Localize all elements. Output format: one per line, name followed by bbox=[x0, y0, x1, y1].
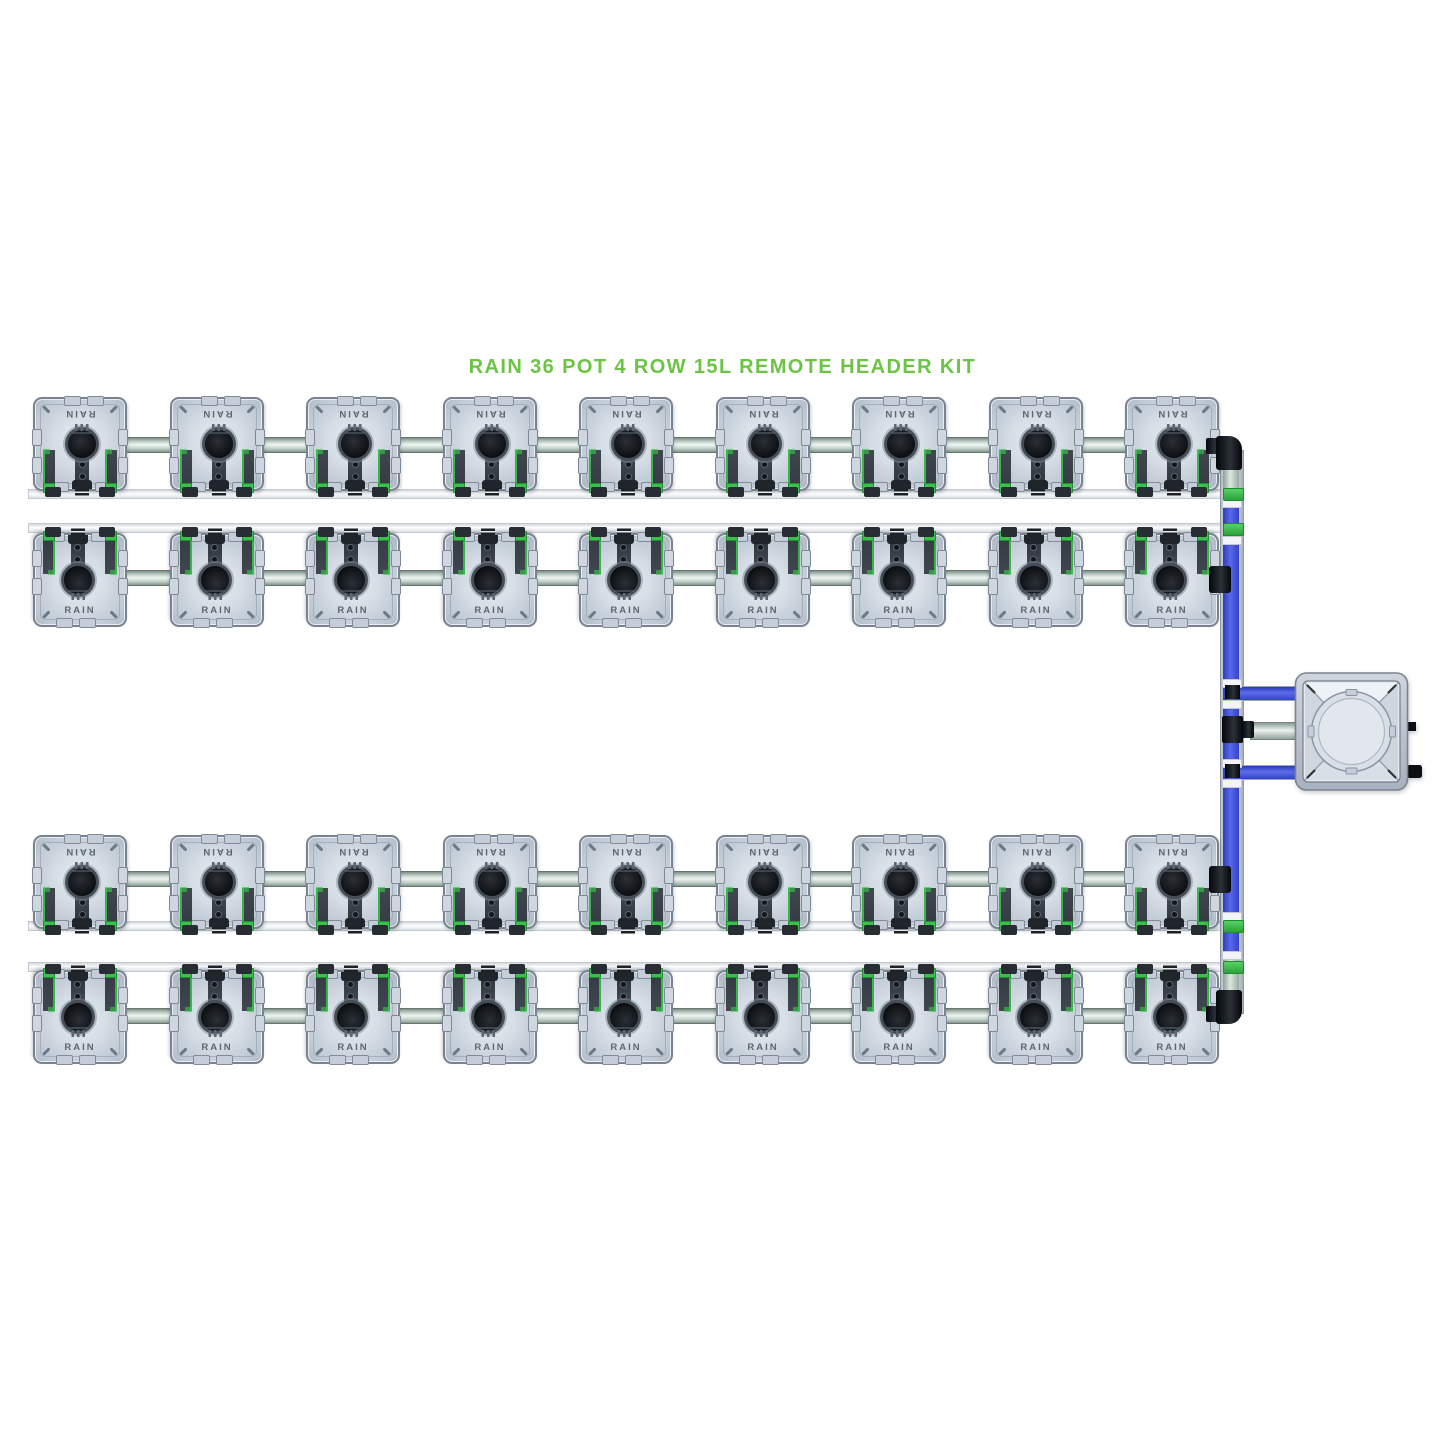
latch-strip-left bbox=[378, 971, 390, 1011]
pot-body: RAIN bbox=[579, 533, 673, 627]
side-clip bbox=[664, 987, 674, 1004]
pot-logo-marks bbox=[617, 593, 631, 600]
side-clip bbox=[851, 987, 861, 1004]
latch-strip-left bbox=[515, 971, 527, 1011]
side-clip bbox=[1074, 867, 1084, 884]
pot-logo-marks bbox=[621, 862, 635, 869]
pot-logo-marks bbox=[208, 1030, 222, 1037]
diagram-canvas: RAIN 36 POT 4 ROW 15L REMOTE HEADER KIT bbox=[0, 0, 1445, 1445]
side-clip bbox=[169, 1015, 179, 1032]
pot-foot bbox=[372, 964, 388, 974]
pot-tab bbox=[898, 1055, 915, 1065]
pot-logo-marks bbox=[1167, 424, 1181, 431]
pot-tab bbox=[898, 618, 915, 628]
side-clip bbox=[937, 550, 947, 567]
pot-foot bbox=[918, 925, 934, 935]
pot-tab bbox=[224, 834, 241, 844]
pot-row-1-5: RAIN bbox=[579, 397, 673, 491]
side-clip bbox=[988, 550, 998, 567]
side-clip bbox=[664, 578, 674, 595]
pot-body: RAIN bbox=[716, 835, 810, 929]
pot-brand-label: RAIN bbox=[35, 605, 125, 616]
latch-strip-right bbox=[999, 971, 1011, 1011]
latch-strip-right bbox=[515, 888, 527, 928]
outlet-base bbox=[341, 535, 361, 544]
latch-strip-left bbox=[515, 534, 527, 574]
side-clip bbox=[255, 429, 265, 446]
pot-foot bbox=[1191, 487, 1207, 497]
side-clip bbox=[937, 867, 947, 884]
pot-foot bbox=[1137, 925, 1153, 935]
green-clip-row-4-return bbox=[1223, 961, 1244, 974]
pot-foot bbox=[1055, 487, 1071, 497]
side-clip bbox=[528, 987, 538, 1004]
outlet-connector bbox=[1027, 527, 1041, 535]
latch-strip-right bbox=[43, 971, 55, 1011]
outlet-base bbox=[72, 480, 92, 489]
pot-tab bbox=[466, 1055, 483, 1065]
pot-brand-label: RAIN bbox=[35, 408, 125, 419]
latch-strip-left bbox=[999, 450, 1011, 490]
side-clip bbox=[851, 429, 861, 446]
side-clip bbox=[801, 550, 811, 567]
pot-foot bbox=[1001, 527, 1017, 537]
pot-body: RAIN bbox=[852, 533, 946, 627]
pot-body: RAIN bbox=[852, 970, 946, 1064]
tank-blue-pipe-bottom bbox=[1239, 765, 1299, 780]
side-clip bbox=[988, 1015, 998, 1032]
pot-tab bbox=[739, 1055, 756, 1065]
latch-strip-left bbox=[862, 888, 874, 928]
side-clip bbox=[715, 1015, 725, 1032]
pot-tab bbox=[762, 618, 779, 628]
pot-row-4-8: RAIN bbox=[989, 970, 1083, 1064]
outlet-base bbox=[618, 918, 638, 927]
side-clip bbox=[937, 1015, 947, 1032]
side-clip bbox=[801, 895, 811, 912]
side-clip bbox=[118, 550, 128, 567]
pot-body: RAIN bbox=[170, 835, 264, 929]
pot-body: RAIN bbox=[443, 533, 537, 627]
latch-strip-left bbox=[788, 534, 800, 574]
side-clip bbox=[715, 895, 725, 912]
pot-row-1-4: RAIN bbox=[443, 397, 537, 491]
outlet-connector bbox=[485, 489, 499, 497]
side-clip bbox=[305, 429, 315, 446]
pot-brand-label: RAIN bbox=[1127, 605, 1217, 616]
pot-foot bbox=[591, 527, 607, 537]
outlet-connector bbox=[75, 489, 89, 497]
side-clip bbox=[1074, 457, 1084, 474]
pot-logo-marks bbox=[344, 593, 358, 600]
pot-tab bbox=[216, 1055, 233, 1065]
latch-strip-left bbox=[726, 450, 738, 490]
outlet-base bbox=[891, 480, 911, 489]
outlet-connector bbox=[1031, 927, 1045, 935]
side-clip bbox=[32, 550, 42, 567]
tank-feed-fitting-top bbox=[1225, 685, 1240, 699]
pot-brand-label: RAIN bbox=[308, 605, 398, 616]
pot-row-2-5: RAIN bbox=[579, 533, 673, 627]
pot-body: RAIN bbox=[1125, 835, 1219, 929]
side-clip bbox=[528, 457, 538, 474]
pot-foot bbox=[45, 964, 61, 974]
pot-logo-marks bbox=[71, 1030, 85, 1037]
pot-body: RAIN bbox=[170, 970, 264, 1064]
pot-foot bbox=[99, 487, 115, 497]
side-clip bbox=[937, 987, 947, 1004]
pot-tab bbox=[747, 834, 764, 844]
latch-strip-right bbox=[453, 971, 465, 1011]
pot-tab bbox=[762, 1055, 779, 1065]
pot-tab bbox=[610, 834, 627, 844]
side-clip bbox=[391, 457, 401, 474]
pot-row-3-6: RAIN bbox=[716, 835, 810, 929]
side-clip bbox=[442, 867, 452, 884]
side-clip bbox=[118, 429, 128, 446]
pot-tab bbox=[224, 396, 241, 406]
pot-tab bbox=[1020, 834, 1037, 844]
latch-strip-left bbox=[105, 534, 117, 574]
latch-strip-left bbox=[1197, 534, 1209, 574]
pot-foot bbox=[728, 964, 744, 974]
outlet-base bbox=[887, 535, 907, 544]
pot-tab bbox=[497, 396, 514, 406]
side-clip bbox=[32, 867, 42, 884]
pot-tab bbox=[770, 396, 787, 406]
side-clip bbox=[528, 867, 538, 884]
side-clip bbox=[988, 457, 998, 474]
pot-logo-marks bbox=[481, 1030, 495, 1037]
latch-strip-right bbox=[726, 971, 738, 1011]
pot-row-3-8: RAIN bbox=[989, 835, 1083, 929]
pot-foot bbox=[236, 925, 252, 935]
pot-brand-label: RAIN bbox=[308, 1042, 398, 1053]
side-clip bbox=[988, 429, 998, 446]
outlet-base bbox=[209, 480, 229, 489]
pot-row-4-4: RAIN bbox=[443, 970, 537, 1064]
pot-tab bbox=[360, 834, 377, 844]
latch-strip-right bbox=[316, 971, 328, 1011]
latch-strip-left bbox=[589, 450, 601, 490]
side-clip bbox=[578, 578, 588, 595]
side-clip bbox=[305, 550, 315, 567]
side-clip bbox=[255, 578, 265, 595]
outlet-connector bbox=[894, 927, 908, 935]
side-clip bbox=[1124, 895, 1134, 912]
latch-strip-right bbox=[1061, 888, 1073, 928]
pot-tab bbox=[1043, 834, 1060, 844]
pipe-collar bbox=[1222, 700, 1242, 709]
green-clip-row-3-return bbox=[1223, 920, 1244, 933]
pot-foot bbox=[1001, 964, 1017, 974]
pot-row-3-3: RAIN bbox=[306, 835, 400, 929]
row-3-tee-fitting bbox=[1209, 866, 1231, 893]
pot-brand-label: RAIN bbox=[718, 408, 808, 419]
outlet-base bbox=[1024, 535, 1044, 544]
side-clip bbox=[1210, 550, 1220, 567]
pot-foot bbox=[99, 925, 115, 935]
pot-logo-marks bbox=[754, 593, 768, 600]
header-tank bbox=[1294, 671, 1426, 793]
pot-tab bbox=[56, 618, 73, 628]
pot-row-3-7: RAIN bbox=[852, 835, 946, 929]
outlet-connector bbox=[208, 964, 222, 972]
pot-foot bbox=[45, 925, 61, 935]
side-clip bbox=[1074, 429, 1084, 446]
outlet-connector bbox=[890, 964, 904, 972]
outlet-connector bbox=[621, 489, 635, 497]
latch-strip-left bbox=[316, 450, 328, 490]
pot-foot bbox=[182, 964, 198, 974]
pot-brand-label: RAIN bbox=[991, 605, 1081, 616]
pot-logo-marks bbox=[344, 1030, 358, 1037]
side-clip bbox=[255, 457, 265, 474]
latch-strip-left bbox=[651, 534, 663, 574]
latch-strip-left bbox=[1061, 971, 1073, 1011]
side-clip bbox=[305, 987, 315, 1004]
pot-foot bbox=[918, 487, 934, 497]
pipe-collar bbox=[1222, 536, 1242, 545]
side-clip bbox=[442, 1015, 452, 1032]
outlet-connector bbox=[758, 489, 772, 497]
pot-foot bbox=[591, 925, 607, 935]
pot-foot bbox=[782, 527, 798, 537]
side-clip bbox=[851, 867, 861, 884]
latch-strip-left bbox=[1061, 534, 1073, 574]
pot-brand-label: RAIN bbox=[718, 605, 808, 616]
pot-foot bbox=[864, 527, 880, 537]
side-clip bbox=[578, 1015, 588, 1032]
row-2-tee-fitting bbox=[1209, 566, 1231, 593]
side-clip bbox=[255, 895, 265, 912]
latch-strip-right bbox=[180, 971, 192, 1011]
outlet-connector bbox=[485, 927, 499, 935]
outlet-base bbox=[68, 535, 88, 544]
pot-foot bbox=[1055, 925, 1071, 935]
side-clip bbox=[664, 867, 674, 884]
pot-logo-marks bbox=[1027, 593, 1041, 600]
outlet-base bbox=[751, 972, 771, 981]
pot-foot bbox=[318, 964, 334, 974]
pot-body: RAIN bbox=[579, 835, 673, 929]
pot-tab bbox=[474, 834, 491, 844]
outlet-connector bbox=[75, 927, 89, 935]
pot-tab bbox=[1035, 618, 1052, 628]
side-clip bbox=[851, 1015, 861, 1032]
latch-strip-right bbox=[589, 971, 601, 1011]
side-clip bbox=[937, 895, 947, 912]
latch-strip-left bbox=[589, 888, 601, 928]
outlet-base bbox=[68, 972, 88, 981]
pot-brand-label: RAIN bbox=[854, 605, 944, 616]
outlet-connector bbox=[754, 964, 768, 972]
side-clip bbox=[255, 1015, 265, 1032]
side-clip bbox=[1124, 867, 1134, 884]
outlet-base bbox=[1164, 480, 1184, 489]
outlet-base bbox=[72, 918, 92, 927]
pot-foot bbox=[1055, 964, 1071, 974]
pot-brand-label: RAIN bbox=[172, 1042, 262, 1053]
side-clip bbox=[801, 429, 811, 446]
pot-brand-label: RAIN bbox=[854, 408, 944, 419]
pot-tab bbox=[602, 618, 619, 628]
side-clip bbox=[664, 429, 674, 446]
pot-row-1-6: RAIN bbox=[716, 397, 810, 491]
pot-foot bbox=[455, 487, 471, 497]
outlet-base bbox=[1024, 972, 1044, 981]
side-clip bbox=[118, 1015, 128, 1032]
pot-tab bbox=[87, 396, 104, 406]
pot-foot bbox=[236, 487, 252, 497]
latch-strip-right bbox=[862, 534, 874, 574]
pot-foot bbox=[1137, 964, 1153, 974]
outlet-base bbox=[1164, 918, 1184, 927]
latch-strip-right bbox=[316, 534, 328, 574]
latch-strip-right bbox=[242, 450, 254, 490]
side-clip bbox=[937, 429, 947, 446]
side-clip bbox=[851, 578, 861, 595]
pot-foot bbox=[509, 925, 525, 935]
pot-tab bbox=[337, 834, 354, 844]
pot-body: RAIN bbox=[443, 397, 537, 491]
pot-tab bbox=[906, 396, 923, 406]
pot-tab bbox=[79, 1055, 96, 1065]
outlet-connector bbox=[617, 964, 631, 972]
pot-brand-label: RAIN bbox=[445, 846, 535, 857]
outlet-base bbox=[891, 918, 911, 927]
pot-brand-label: RAIN bbox=[991, 1042, 1081, 1053]
pot-body: RAIN bbox=[306, 397, 400, 491]
pot-brand-label: RAIN bbox=[854, 1042, 944, 1053]
pot-foot bbox=[645, 487, 661, 497]
outlet-connector bbox=[754, 527, 768, 535]
side-clip bbox=[988, 867, 998, 884]
outlet-base bbox=[614, 535, 634, 544]
pot-body: RAIN bbox=[716, 533, 810, 627]
outlet-connector bbox=[344, 527, 358, 535]
side-clip bbox=[118, 578, 128, 595]
side-clip bbox=[801, 987, 811, 1004]
latch-strip-right bbox=[1061, 450, 1073, 490]
pot-logo-marks bbox=[71, 593, 85, 600]
pot-row-2-2: RAIN bbox=[170, 533, 264, 627]
pot-tab bbox=[747, 396, 764, 406]
side-clip bbox=[391, 895, 401, 912]
pot-foot bbox=[455, 527, 471, 537]
pot-tab bbox=[201, 396, 218, 406]
pot-tab bbox=[1156, 396, 1173, 406]
side-clip bbox=[391, 1015, 401, 1032]
pipe-collar bbox=[1222, 951, 1242, 960]
side-clip bbox=[528, 895, 538, 912]
latch-strip-right bbox=[105, 888, 117, 928]
pot-logo-marks bbox=[485, 862, 499, 869]
side-clip bbox=[169, 867, 179, 884]
outlet-base bbox=[482, 480, 502, 489]
pot-foot bbox=[455, 964, 471, 974]
side-clip bbox=[305, 457, 315, 474]
side-clip bbox=[664, 895, 674, 912]
side-clip bbox=[169, 429, 179, 446]
pot-foot bbox=[455, 925, 471, 935]
side-clip bbox=[715, 987, 725, 1004]
outlet-connector bbox=[481, 527, 495, 535]
pot-foot bbox=[182, 925, 198, 935]
pot-foot bbox=[318, 487, 334, 497]
side-clip bbox=[578, 429, 588, 446]
pot-tab bbox=[1035, 1055, 1052, 1065]
side-clip bbox=[118, 867, 128, 884]
side-clip bbox=[1124, 987, 1134, 1004]
pot-foot bbox=[99, 527, 115, 537]
pot-brand-label: RAIN bbox=[445, 605, 535, 616]
pot-tab bbox=[1179, 396, 1196, 406]
latch-strip-right bbox=[788, 888, 800, 928]
pot-tab bbox=[193, 1055, 210, 1065]
side-clip bbox=[442, 429, 452, 446]
outlet-connector bbox=[71, 527, 85, 535]
side-clip bbox=[528, 578, 538, 595]
side-clip bbox=[32, 457, 42, 474]
side-clip bbox=[391, 867, 401, 884]
outlet-base bbox=[478, 535, 498, 544]
pot-foot bbox=[318, 925, 334, 935]
pipe-collar bbox=[1222, 779, 1242, 788]
side-clip bbox=[1124, 429, 1134, 446]
pot-foot bbox=[918, 527, 934, 537]
bottom-elbow-fitting bbox=[1216, 990, 1242, 1024]
pot-brand-label: RAIN bbox=[172, 605, 262, 616]
side-clip bbox=[801, 578, 811, 595]
outlet-base bbox=[751, 535, 771, 544]
pot-body: RAIN bbox=[443, 970, 537, 1064]
outlet-connector bbox=[212, 489, 226, 497]
side-clip bbox=[801, 867, 811, 884]
side-clip bbox=[664, 1015, 674, 1032]
pot-body: RAIN bbox=[579, 970, 673, 1064]
pot-row-4-5: RAIN bbox=[579, 970, 673, 1064]
latch-strip-left bbox=[924, 534, 936, 574]
pot-row-4-1: RAIN bbox=[33, 970, 127, 1064]
outlet-base bbox=[345, 918, 365, 927]
pot-tab bbox=[489, 1055, 506, 1065]
latch-strip-left bbox=[180, 450, 192, 490]
pot-logo-marks bbox=[758, 424, 772, 431]
pot-logo-marks bbox=[890, 593, 904, 600]
pot-foot bbox=[182, 487, 198, 497]
pot-logo-marks bbox=[621, 424, 635, 431]
latch-strip-right bbox=[726, 534, 738, 574]
pot-brand-label: RAIN bbox=[308, 846, 398, 857]
side-clip bbox=[169, 550, 179, 567]
side-clip bbox=[1124, 550, 1134, 567]
latch-strip-right bbox=[1197, 450, 1209, 490]
pot-foot bbox=[509, 964, 525, 974]
pot-logo-marks bbox=[617, 1030, 631, 1037]
pot-tab bbox=[1020, 396, 1037, 406]
pot-foot bbox=[99, 964, 115, 974]
outlet-base bbox=[1028, 918, 1048, 927]
pot-body: RAIN bbox=[33, 970, 127, 1064]
side-clip bbox=[1074, 895, 1084, 912]
pot-row-1-2: RAIN bbox=[170, 397, 264, 491]
latch-strip-left bbox=[180, 888, 192, 928]
kit-title: RAIN 36 POT 4 ROW 15L REMOTE HEADER KIT bbox=[0, 356, 1445, 379]
pot-foot bbox=[236, 964, 252, 974]
pot-tab bbox=[329, 618, 346, 628]
outlet-connector bbox=[894, 489, 908, 497]
